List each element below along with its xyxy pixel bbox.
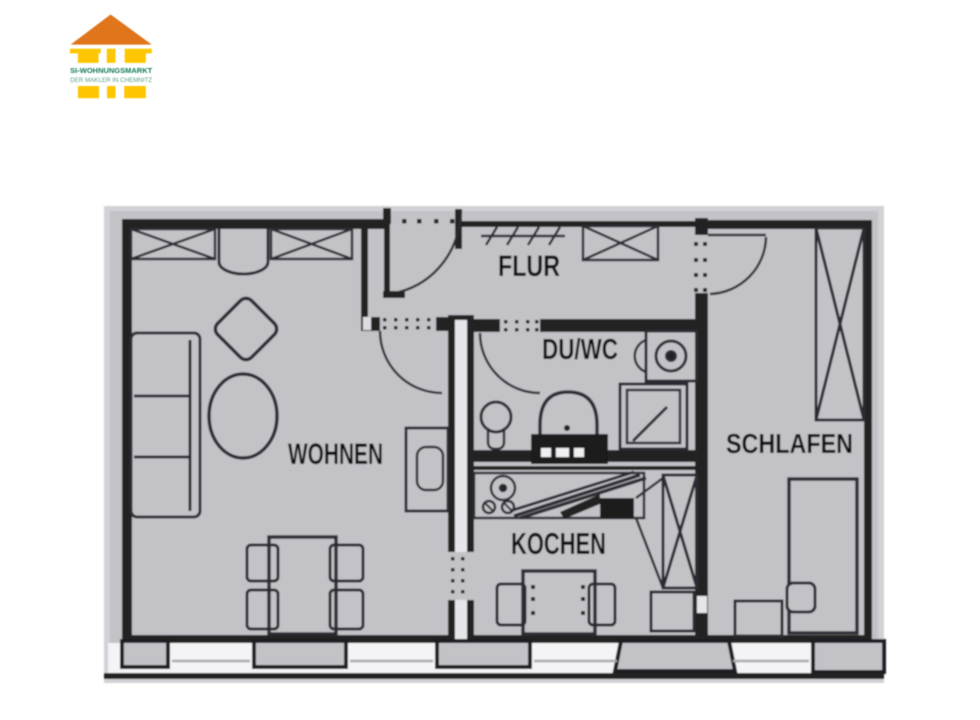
svg-text:FLUR: FLUR xyxy=(498,250,560,283)
svg-text:WOHNEN: WOHNEN xyxy=(288,438,383,471)
svg-text:SI-WOHNUNGSMARKT: SI-WOHNUNGSMARKT xyxy=(70,66,152,75)
svg-text:DER MAKLER IN CHEMNITZ: DER MAKLER IN CHEMNITZ xyxy=(70,77,152,84)
svg-text:KOCHEN: KOCHEN xyxy=(511,526,606,561)
svg-text:DU/WC: DU/WC xyxy=(542,334,618,366)
svg-text:SCHLAFEN: SCHLAFEN xyxy=(726,428,853,459)
